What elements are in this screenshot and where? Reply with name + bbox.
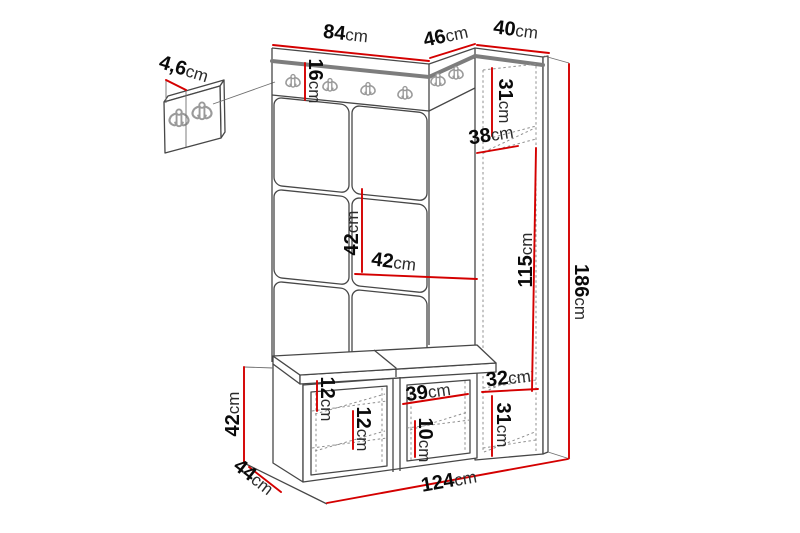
diagram-canvas: 84cm 46cm 40cm 4,6cm 16cm 31cm 38cm 42cm…: [0, 0, 800, 533]
label-panel-thickness: 4,6cm: [156, 51, 211, 87]
panel-tile: [352, 197, 427, 293]
dimension-line-panel-thickness: [166, 80, 186, 90]
label-tile-height: 42cm: [341, 211, 363, 256]
label-bench-depth: 44cm: [229, 455, 278, 500]
furniture-dimension-diagram: 84cm 46cm 40cm 4,6cm 16cm 31cm 38cm 42cm…: [0, 0, 800, 533]
label-bench-gap-lower: 12cm: [352, 407, 374, 452]
label-cabinet-top-section: 31cm: [494, 79, 516, 124]
label-panel-width: 84cm: [322, 21, 369, 48]
dim-84: [273, 45, 429, 61]
cabinet-right-edge: [543, 56, 548, 454]
label-bench-shelf-spacing: 10cm: [414, 418, 436, 463]
coat-hook-icon: [361, 83, 375, 95]
label-bench-gap-upper: 12cm: [316, 377, 338, 422]
label-hanging-height: 115cm: [515, 233, 537, 288]
panel-tile: [352, 105, 427, 201]
detail-hook-panel: [164, 80, 275, 153]
coat-hook-icon: [398, 87, 412, 99]
panel-tile: [274, 97, 349, 193]
label-cabinet-width: 40cm: [492, 16, 539, 43]
label-rail-height: 16cm: [304, 59, 326, 104]
label-total-width: 124cm: [419, 465, 478, 496]
label-cabinet-bottom-section: 31cm: [492, 403, 514, 448]
coat-hook-icon: [286, 75, 300, 87]
shoe-bench: [273, 345, 496, 482]
label-bench-height: 42cm: [222, 392, 244, 437]
panel-tile: [274, 189, 349, 285]
label-total-height: 186cm: [570, 264, 592, 320]
